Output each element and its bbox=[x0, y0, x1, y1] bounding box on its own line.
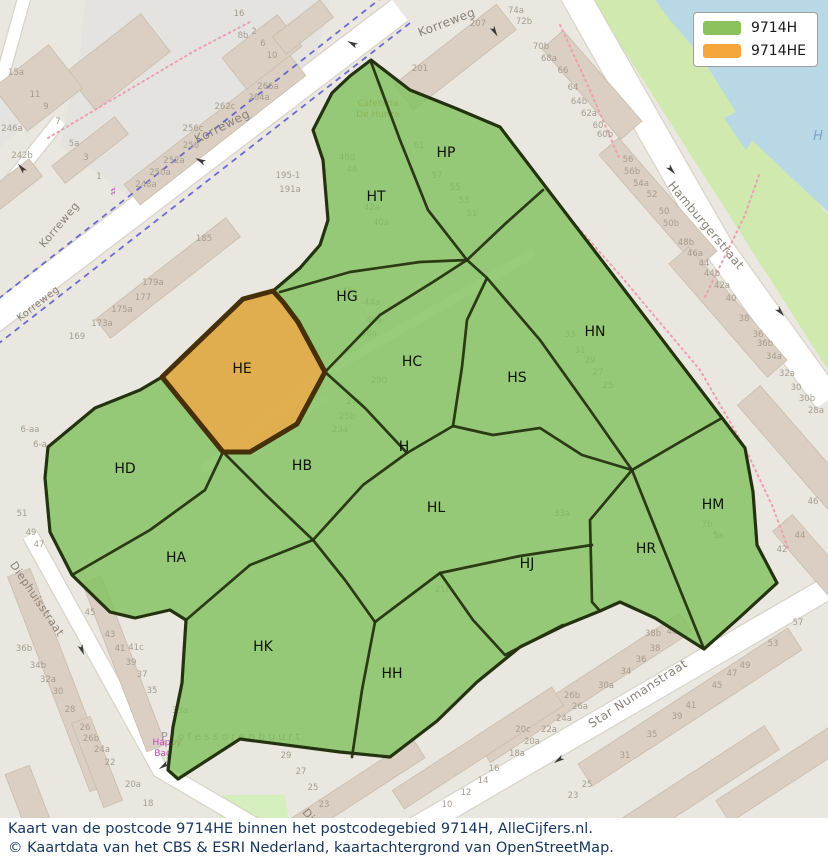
house-number: 57 bbox=[793, 618, 804, 628]
house-number: 39 bbox=[126, 658, 137, 668]
house-number: 14 bbox=[478, 776, 489, 786]
house-number: 18a bbox=[509, 749, 525, 759]
house-number: 169 bbox=[69, 332, 85, 342]
area-label-HJ: HJ bbox=[520, 556, 535, 572]
house-number: 10 bbox=[267, 51, 278, 61]
house-number: 41 bbox=[115, 644, 126, 654]
house-number: 30 bbox=[791, 383, 802, 393]
legend-item-9714h: 9714H bbox=[703, 20, 806, 36]
map-caption: Kaart van de postcode 9714HE binnen het … bbox=[0, 818, 828, 861]
house-number: 2 bbox=[251, 27, 256, 37]
house-number: 207 bbox=[470, 19, 486, 29]
house-number: 45 bbox=[712, 681, 723, 691]
area-label-HL: HL bbox=[427, 500, 446, 516]
house-number: 28 bbox=[65, 705, 76, 715]
house-number: 23 bbox=[319, 800, 330, 810]
area-label-HH: HH bbox=[381, 666, 402, 682]
house-number: 29 bbox=[281, 751, 292, 761]
house-number: 48b bbox=[678, 238, 694, 248]
area-label-HP: HP bbox=[437, 145, 456, 161]
house-number: 56 bbox=[623, 155, 634, 165]
house-number: 201 bbox=[412, 64, 428, 74]
house-number: 24a bbox=[556, 714, 572, 724]
house-number: 23 bbox=[568, 791, 579, 801]
poi-icon: ♯ bbox=[110, 185, 116, 200]
house-number: 56b bbox=[624, 167, 640, 177]
house-number: 35 bbox=[647, 730, 658, 740]
house-number: 49 bbox=[26, 528, 37, 538]
house-number: 66 bbox=[558, 66, 569, 76]
legend-label: 9714HE bbox=[751, 43, 806, 59]
area-label-HD: HD bbox=[114, 461, 135, 477]
legend-label: 9714H bbox=[751, 20, 797, 36]
house-number: 32a bbox=[779, 369, 795, 379]
house-number: 51 bbox=[17, 509, 28, 519]
house-number: 10 bbox=[442, 800, 453, 810]
area-label-HM: HM bbox=[702, 497, 725, 513]
house-number: 47 bbox=[34, 540, 45, 550]
house-number: 46 bbox=[808, 497, 819, 507]
postcode-map[interactable]: KorrewegKorrewegKorrewegKorrewegHamburge… bbox=[0, 0, 828, 818]
house-number: 31 bbox=[620, 751, 631, 761]
house-number: 11 bbox=[30, 90, 41, 100]
house-number: 41c bbox=[128, 643, 144, 653]
house-number: 42 bbox=[777, 545, 788, 555]
house-number: 6 bbox=[260, 39, 265, 49]
house-number: 30a bbox=[598, 681, 614, 691]
house-number: 16 bbox=[234, 9, 245, 19]
house-number: 44 bbox=[699, 259, 710, 269]
house-number: 264a bbox=[248, 93, 269, 103]
house-number: 49 bbox=[740, 661, 751, 671]
house-number: 43 bbox=[105, 630, 116, 640]
house-number: 22a bbox=[541, 725, 557, 735]
house-number: 53 bbox=[768, 639, 779, 649]
house-number: 50b bbox=[663, 219, 679, 229]
house-number: 34b bbox=[30, 661, 46, 671]
area-label-HK: HK bbox=[253, 639, 274, 655]
caption-line-1: Kaart van de postcode 9714HE binnen het … bbox=[8, 820, 828, 839]
house-number: 70b bbox=[533, 42, 549, 52]
house-number: 16 bbox=[489, 764, 500, 774]
house-number: 52 bbox=[647, 190, 658, 200]
house-number: 60b bbox=[597, 130, 613, 140]
legend-swatch-9714h-icon bbox=[703, 21, 741, 35]
house-number: 45 bbox=[85, 608, 96, 618]
house-number: 27 bbox=[296, 767, 307, 777]
house-number: 38 bbox=[739, 314, 750, 324]
house-number: 54a bbox=[633, 179, 649, 189]
house-number: 74a bbox=[508, 6, 524, 16]
house-number: 191a bbox=[279, 185, 300, 195]
house-number: 28a bbox=[808, 406, 824, 416]
house-number: 262c bbox=[215, 102, 236, 112]
house-number: 173a bbox=[91, 319, 112, 329]
area-label-HR: HR bbox=[636, 541, 657, 557]
house-number: 25 bbox=[582, 780, 593, 790]
area-label-HN: HN bbox=[585, 324, 606, 340]
house-number: 26 bbox=[80, 723, 91, 733]
house-number: 32a bbox=[40, 675, 56, 685]
house-number: 68a bbox=[541, 54, 557, 64]
house-number: 25 bbox=[308, 783, 319, 793]
house-number: 72b bbox=[516, 17, 532, 27]
house-number: 34 bbox=[621, 667, 632, 677]
legend-swatch-9714he-icon bbox=[703, 44, 741, 58]
house-number: 46a bbox=[687, 249, 703, 259]
house-number: 7 bbox=[55, 117, 60, 127]
house-number: 41 bbox=[686, 701, 697, 711]
area-label-HS: HS bbox=[507, 370, 527, 386]
house-number: 42a bbox=[714, 281, 730, 291]
house-number: 246a bbox=[1, 124, 22, 134]
house-number: 36b bbox=[757, 339, 773, 349]
house-number: 39 bbox=[672, 712, 683, 722]
area-label-HT: HT bbox=[366, 189, 386, 205]
area-label-HC: HC bbox=[402, 354, 423, 370]
house-number: 5a bbox=[69, 139, 80, 149]
house-number: 38 bbox=[650, 644, 661, 654]
house-number: 242b bbox=[11, 151, 33, 161]
house-number: 20a bbox=[524, 737, 540, 747]
house-number: 6-aa bbox=[21, 425, 40, 435]
house-number: 252a bbox=[163, 156, 184, 166]
house-number: 22 bbox=[105, 758, 116, 768]
house-number: 248a bbox=[135, 180, 156, 190]
house-number: 195-1 bbox=[276, 171, 301, 181]
house-number: 64b bbox=[571, 97, 587, 107]
house-number: 9 bbox=[43, 102, 48, 112]
house-number: 50 bbox=[659, 207, 670, 217]
area-label-HB: HB bbox=[292, 458, 312, 474]
house-number: 26a bbox=[572, 702, 588, 712]
house-number: 64 bbox=[568, 83, 579, 93]
house-number: 35 bbox=[147, 686, 158, 696]
house-number: 24a bbox=[94, 745, 110, 755]
house-number: 250a bbox=[149, 168, 170, 178]
house-number: 266a bbox=[257, 82, 278, 92]
house-number: 12 bbox=[461, 788, 472, 798]
house-number: 30b bbox=[799, 394, 815, 404]
house-number: 47 bbox=[727, 669, 738, 679]
house-number: 3 bbox=[83, 153, 88, 163]
area-label-HE: HE bbox=[232, 361, 251, 377]
caption-line-2: © Kaartdata van het CBS & ESRI Nederland… bbox=[8, 839, 828, 858]
house-number: 185 bbox=[196, 234, 212, 244]
house-number: 18 bbox=[143, 799, 154, 809]
house-number: 1 bbox=[96, 172, 101, 182]
house-number: 30 bbox=[53, 687, 64, 697]
legend-item-9714he: 9714HE bbox=[703, 43, 806, 59]
house-number: 26b bbox=[564, 691, 580, 701]
house-number: 44 bbox=[795, 531, 806, 541]
house-number: 26b bbox=[83, 734, 99, 744]
house-number: 175a bbox=[111, 305, 132, 315]
house-number: 256 bbox=[183, 141, 199, 151]
house-number: 38b bbox=[645, 629, 661, 639]
house-number: 40 bbox=[726, 294, 737, 304]
house-number: 15a bbox=[8, 68, 24, 78]
house-number: 20a bbox=[125, 780, 141, 790]
map-viewport[interactable]: KorrewegKorrewegKorrewegKorrewegHamburge… bbox=[0, 0, 828, 861]
poi-label: H bbox=[813, 129, 823, 144]
house-number: 37 bbox=[137, 670, 148, 680]
house-number: 36 bbox=[636, 655, 647, 665]
area-label-H: H bbox=[399, 439, 410, 455]
house-number: 44b bbox=[704, 269, 720, 279]
house-number: 6-a bbox=[33, 440, 47, 450]
area-label-HA: HA bbox=[166, 550, 187, 566]
house-number: 36b bbox=[16, 644, 32, 654]
house-number: 177 bbox=[135, 293, 151, 303]
house-number: 20c bbox=[515, 725, 531, 735]
house-number: 34a bbox=[766, 352, 782, 362]
house-number: 8b bbox=[238, 31, 249, 41]
legend: 9714H 9714HE bbox=[693, 12, 818, 67]
house-number: 62a bbox=[581, 109, 597, 119]
house-number: 179a bbox=[142, 278, 163, 288]
house-number: 256c bbox=[183, 124, 204, 134]
area-label-HG: HG bbox=[336, 289, 357, 305]
